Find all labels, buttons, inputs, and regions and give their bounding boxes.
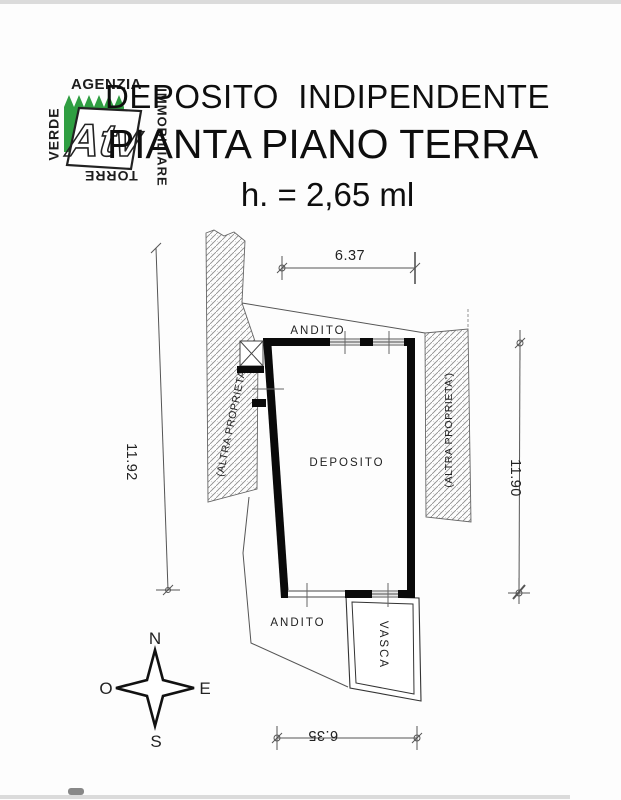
opening-bottom [288, 590, 345, 598]
dimension-right-value: 11.90 [507, 459, 523, 497]
compass-north-label: N [149, 629, 161, 648]
compass-east-label: E [199, 679, 210, 698]
scan-artifact-top [0, 0, 621, 4]
scanned-floor-plan-page: Atv AGENZIA VERDE TORRE IMMOBILIARE DEPO… [0, 0, 621, 800]
andito-bottom-label: ANDITO [270, 617, 325, 629]
deposito-label: DEPOSITO [309, 457, 384, 469]
shaft-x-box [240, 341, 263, 366]
compass-west-label: O [99, 679, 112, 698]
compass-south-label: S [150, 732, 161, 751]
dimension-left-value: 11.92 [123, 443, 139, 481]
andito-top-label: ANDITO [290, 325, 345, 337]
dimension-left [151, 243, 180, 595]
wall-right [407, 338, 415, 598]
scan-artifact-blob [68, 788, 84, 795]
dimension-bottom [272, 726, 422, 750]
compass-star [116, 650, 194, 726]
scan-artifact-bottom [0, 795, 570, 799]
compass-rose: N S E O [99, 629, 210, 751]
altra-proprieta-right-label: (ALTRA PROPRIETA') [443, 372, 455, 487]
dimension-top-value: 6.37 [335, 248, 365, 264]
vasca-label: VASCA [377, 621, 389, 669]
wall-stub-1 [237, 366, 264, 373]
wall-left [263, 338, 289, 598]
wall-stub-2 [252, 399, 266, 407]
window-bottom [372, 590, 398, 598]
floor-plan-drawing: (ALTRA PROPRIETA') (ALTRA PROPRIETA') VA… [0, 0, 621, 800]
dimension-bottom-value: 6.35 [308, 727, 338, 743]
